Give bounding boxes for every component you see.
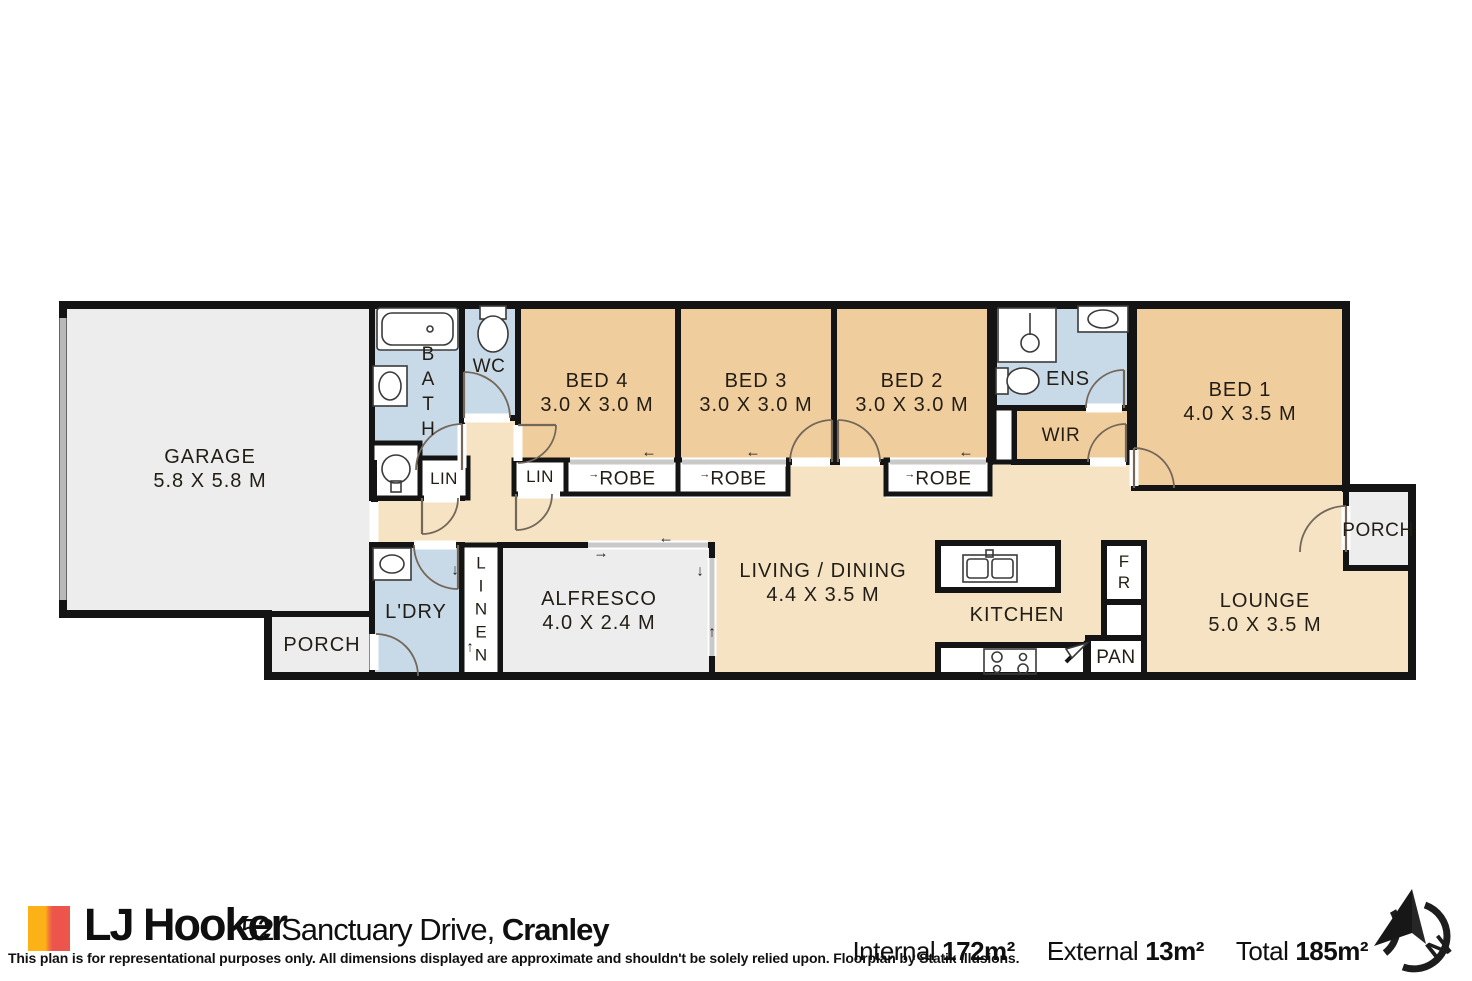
- swing-arrow-icon: ←: [746, 444, 761, 461]
- address-street: 52 Sanctuary Drive,: [241, 912, 494, 947]
- room-label-kitchen: KITCHEN: [970, 603, 1065, 627]
- sliding-arrow-icon: →: [904, 469, 915, 481]
- svg-text:N: N: [1420, 929, 1457, 968]
- swing-arrow-icon: ←: [642, 444, 657, 461]
- address-suburb: Cranley: [502, 912, 609, 947]
- room-label-robe-2: →ROBE: [699, 463, 766, 492]
- sliding-arrow-icon: →: [699, 469, 710, 481]
- room-label-porch-left: PORCH: [283, 633, 360, 657]
- slide-arrow-icon: ↑: [708, 624, 716, 641]
- room-label-lin-1: LIN: [430, 467, 458, 491]
- swing-arrow-icon: ↑: [466, 639, 474, 656]
- wc-toilet-icon: [478, 306, 508, 352]
- room-label-bath: BATH: [419, 344, 438, 444]
- room-label-bed2: BED 23.0 X 3.0 M: [855, 369, 968, 417]
- swing-arrow-icon: ←: [959, 444, 974, 461]
- room-label-linen: LINEN: [473, 554, 490, 669]
- area-stats: Internal172m² External13m² Total185m²: [852, 936, 1368, 967]
- room-label-wir: WIR: [1042, 424, 1081, 448]
- compass-north-icon: N: [1366, 886, 1466, 978]
- ens-shower-icon: [998, 308, 1056, 362]
- room-label-robe-1: →ROBE: [588, 463, 655, 492]
- ens-basin-icon: [1078, 306, 1128, 332]
- property-address: 52 Sanctuary Drive, Cranley: [241, 912, 609, 948]
- ens-toilet-icon: [996, 368, 1039, 394]
- room-label-ldry: L'DRY: [385, 600, 447, 624]
- room-label-alfresco: ALFRESCO4.0 X 2.4 M: [541, 587, 657, 635]
- room-label-robe-3: →ROBE: [904, 463, 971, 492]
- room-label-living-dining: LIVING / DINING4.4 X 3.5 M: [739, 559, 906, 607]
- sliding-arrow-icon: →: [588, 469, 599, 481]
- room-label-bed3: BED 33.0 X 3.0 M: [699, 369, 812, 417]
- room-label-bed4: BED 43.0 X 3.0 M: [540, 369, 653, 417]
- stat-internal: Internal172m²: [852, 936, 1014, 967]
- laundry-tub-icon: [373, 548, 411, 580]
- room-label-ens: ENS: [1046, 367, 1090, 391]
- floorplan-page: GARAGE5.8 X 5.8 M PORCH BATH WC LIN BED …: [0, 0, 1472, 981]
- slide-arrow-icon: ←: [659, 530, 674, 547]
- room-label-wc: WC: [473, 355, 506, 379]
- room-label-porch-right: PORCH: [1342, 519, 1414, 543]
- room-label-garage: GARAGE5.8 X 5.8 M: [153, 445, 266, 493]
- room-label-fr: FR: [1116, 552, 1133, 594]
- ljhooker-logo-icon: [28, 906, 70, 951]
- room-label-lin-2: LIN: [526, 465, 554, 489]
- room-label-pan: PAN: [1096, 646, 1135, 670]
- stat-external: External13m²: [1047, 936, 1204, 967]
- swing-arrow-icon: ↓: [451, 562, 459, 579]
- slide-arrow-icon: →: [594, 545, 609, 562]
- stat-total: Total185m²: [1236, 936, 1368, 967]
- bath-basin-icon: [373, 366, 407, 406]
- slide-arrow-icon: ↓: [696, 563, 704, 580]
- room-label-bed1: BED 14.0 X 3.5 M: [1183, 378, 1296, 426]
- room-label-lounge: LOUNGE5.0 X 3.5 M: [1208, 589, 1321, 637]
